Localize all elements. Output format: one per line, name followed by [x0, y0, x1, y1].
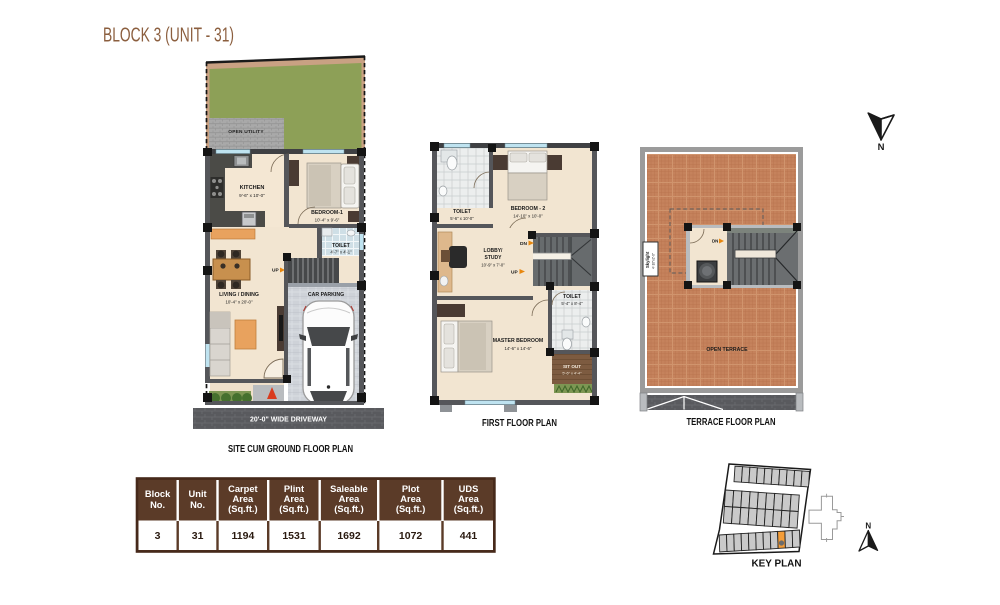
svg-text:Area: Area	[284, 494, 306, 504]
svg-text:SITE CUM GROUND FLOOR PLAN: SITE CUM GROUND FLOOR PLAN	[228, 444, 353, 455]
svg-text:4'-10"x2'-0": 4'-10"x2'-0"	[652, 253, 656, 269]
svg-text:4'-7'' x 4'-1'': 4'-7'' x 4'-1''	[330, 250, 352, 255]
svg-text:(Sq.ft.): (Sq.ft.)	[334, 504, 363, 514]
svg-text:10'-4'' x 9'-6": 10'-4'' x 9'-6"	[315, 218, 340, 223]
svg-text:Area: Area	[339, 494, 361, 504]
svg-text:STUDY: STUDY	[485, 255, 503, 261]
svg-text:LOBBY/: LOBBY/	[484, 248, 504, 254]
svg-text:14'-6" x 14'-6": 14'-6" x 14'-6"	[504, 346, 531, 351]
svg-text:FIRST FLOOR PLAN: FIRST FLOOR PLAN	[482, 418, 557, 429]
svg-text:Area: Area	[458, 494, 480, 504]
svg-text:No.: No.	[150, 500, 165, 510]
svg-text:10'-9" x 7'-0": 10'-9" x 7'-0"	[481, 263, 505, 268]
svg-text:BEDROOM-1: BEDROOM-1	[311, 210, 343, 216]
svg-text:DN: DN	[520, 241, 527, 247]
svg-text:20'-0" WIDE DRIVEWAY: 20'-0" WIDE DRIVEWAY	[250, 417, 327, 424]
svg-text:TERRACE FLOOR PLAN: TERRACE FLOOR PLAN	[687, 417, 776, 428]
svg-text:Carpet: Carpet	[228, 484, 257, 494]
svg-text:KEY PLAN: KEY PLAN	[752, 558, 802, 570]
svg-text:1692: 1692	[337, 530, 361, 542]
svg-text:10'-4'' x 20'-0": 10'-4'' x 20'-0"	[225, 300, 253, 305]
svg-text:TOILET: TOILET	[453, 209, 471, 215]
svg-text:CAR PARKING: CAR PARKING	[308, 292, 344, 298]
svg-text:(Sq.ft.): (Sq.ft.)	[228, 504, 257, 514]
svg-text:N: N	[878, 142, 885, 153]
svg-text:14'-10'' x 10'-0": 14'-10'' x 10'-0"	[513, 214, 543, 219]
svg-text:TOILET: TOILET	[332, 243, 350, 249]
svg-text:(Sq.ft.): (Sq.ft.)	[279, 504, 308, 514]
svg-text:9'-6" x 10'-0": 9'-6" x 10'-0"	[239, 193, 265, 198]
svg-text:No.: No.	[190, 500, 205, 510]
svg-text:LIVING / DINING: LIVING / DINING	[219, 292, 259, 298]
svg-text:UP: UP	[511, 270, 518, 276]
svg-text:Skylight: Skylight	[645, 251, 650, 268]
svg-text:3: 3	[155, 530, 161, 542]
svg-text:BLOCK 3 (UNIT - 31): BLOCK 3 (UNIT - 31)	[103, 25, 234, 47]
svg-text:1194: 1194	[232, 530, 255, 542]
svg-text:(Sq.ft.): (Sq.ft.)	[454, 504, 483, 514]
svg-text:441: 441	[460, 530, 478, 542]
svg-text:DN: DN	[712, 239, 718, 244]
svg-text:Plot: Plot	[402, 484, 420, 494]
svg-text:5'-6" x 4'-4'': 5'-6" x 4'-4''	[562, 372, 582, 376]
svg-text:Plint: Plint	[284, 484, 304, 494]
svg-text:31: 31	[192, 530, 204, 542]
svg-text:(Sq.ft.): (Sq.ft.)	[396, 504, 425, 514]
svg-text:1072: 1072	[399, 530, 423, 542]
svg-text:OPEN UTILITY: OPEN UTILITY	[228, 129, 264, 135]
svg-text:UDS: UDS	[459, 484, 479, 494]
svg-text:UP: UP	[272, 268, 279, 274]
svg-text:Block: Block	[145, 489, 171, 499]
svg-text:Saleable: Saleable	[330, 484, 368, 494]
svg-text:SIT OUT: SIT OUT	[563, 364, 581, 369]
svg-text:Unit: Unit	[189, 489, 207, 499]
svg-text:1531: 1531	[282, 530, 306, 542]
svg-text:OPEN TERRACE: OPEN TERRACE	[706, 347, 748, 353]
svg-text:Area: Area	[233, 494, 255, 504]
svg-text:N: N	[865, 522, 871, 531]
svg-text:TOILET: TOILET	[563, 294, 581, 300]
svg-text:BEDROOM - 2: BEDROOM - 2	[511, 206, 546, 212]
svg-text:5'-4'' x 8'-4'': 5'-4'' x 8'-4''	[561, 301, 583, 306]
svg-text:KITCHEN: KITCHEN	[240, 185, 265, 191]
svg-text:MASTER BEDROOM: MASTER BEDROOM	[493, 338, 543, 344]
svg-text:5'-6" x 10'-0": 5'-6" x 10'-0"	[450, 216, 474, 221]
svg-text:Area: Area	[400, 494, 422, 504]
